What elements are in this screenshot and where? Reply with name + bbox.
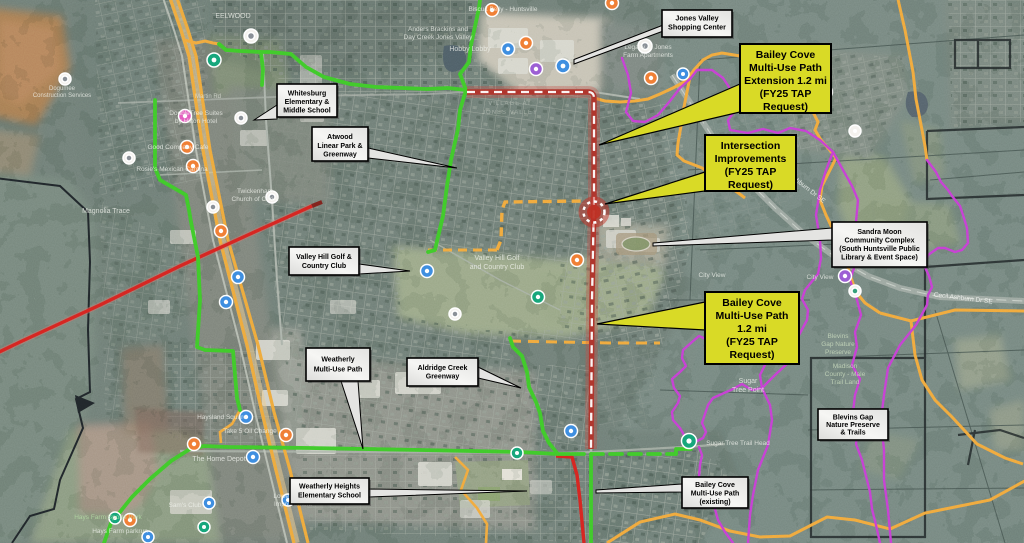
svg-text:Bailey Cove: Bailey Cove <box>722 297 782 309</box>
svg-text:County - Male: County - Male <box>825 371 866 378</box>
svg-text:by Hilton Hotel: by Hilton Hotel <box>175 118 218 125</box>
svg-text:Blevins: Blevins <box>828 333 850 340</box>
svg-text:Extension 1.2 mi: Extension 1.2 mi <box>744 75 827 87</box>
svg-text:Farm Apartments: Farm Apartments <box>623 52 674 59</box>
svg-text:Rosie's Mexican Cantina: Rosie's Mexican Cantina <box>136 166 208 173</box>
svg-text:Tree Point: Tree Point <box>732 387 764 394</box>
svg-text:Weatherly Heights: Weatherly Heights <box>299 484 360 491</box>
svg-text:Blevins Gap: Blevins Gap <box>833 415 873 422</box>
svg-text:Martin Rd: Martin Rd <box>195 94 221 100</box>
svg-text:1.2 mi: 1.2 mi <box>737 323 767 335</box>
svg-text:Trail Land: Trail Land <box>831 379 860 386</box>
svg-text:Intersection: Intersection <box>721 140 781 152</box>
svg-text:Madison: Madison <box>833 363 858 370</box>
svg-text:Request): Request) <box>728 179 773 191</box>
svg-text:Valley Hill Golf: Valley Hill Golf <box>475 255 520 262</box>
svg-text:Nature Preserve: Nature Preserve <box>826 422 880 429</box>
svg-text:Sugar: Sugar <box>739 378 758 385</box>
svg-text:Linear Park &: Linear Park & <box>317 143 362 150</box>
svg-text:Bailey Cove: Bailey Cove <box>695 482 735 489</box>
svg-text:EELWOOD: EELWOOD <box>215 13 250 20</box>
svg-text:Country Club: Country Club <box>302 263 346 270</box>
svg-text:Day Creek Jones Valley: Day Creek Jones Valley <box>404 34 474 41</box>
svg-text:(FY25 TAP: (FY25 TAP <box>725 166 777 178</box>
svg-text:Sugar Tree Trail Head: Sugar Tree Trail Head <box>706 440 770 447</box>
svg-text:The Home Depot: The Home Depot <box>192 456 245 463</box>
svg-text:Greenway: Greenway <box>426 374 460 381</box>
svg-text:Sandra Moon: Sandra Moon <box>857 229 901 236</box>
svg-text:City View: City View <box>807 274 834 281</box>
svg-text:(FY25 TAP: (FY25 TAP <box>760 88 812 100</box>
svg-text:Whitesburg: Whitesburg <box>288 91 327 98</box>
svg-text:Shopping Center: Shopping Center <box>668 23 726 32</box>
svg-text:DoubleTree Suites: DoubleTree Suites <box>169 110 223 117</box>
svg-text:& Trails: & Trails <box>840 430 865 437</box>
svg-text:VILLAGE AT: VILLAGE AT <box>488 101 532 107</box>
svg-text:Greenway: Greenway <box>323 152 357 159</box>
svg-text:Multi-Use Path: Multi-Use Path <box>691 491 740 498</box>
svg-text:Aldridge Creek: Aldridge Creek <box>418 365 468 372</box>
svg-text:Church of Christ: Church of Christ <box>232 196 279 203</box>
svg-text:Dogumee: Dogumee <box>49 86 76 92</box>
svg-text:Biscuit Belly - Huntsville: Biscuit Belly - Huntsville <box>469 6 538 13</box>
svg-text:Hays Farm Sports Park: Hays Farm Sports Park <box>74 514 142 521</box>
svg-text:Community Complex: Community Complex <box>844 238 914 245</box>
svg-text:Anders Brackins and: Anders Brackins and <box>408 26 468 33</box>
svg-text:City View: City View <box>699 272 726 279</box>
svg-text:Elementary School: Elementary School <box>298 493 361 500</box>
svg-text:Weatherly: Weatherly <box>321 357 354 364</box>
svg-text:JONES VALLEY: JONES VALLEY <box>482 110 538 116</box>
svg-text:Improvements: Improvements <box>715 153 787 165</box>
svg-text:Multi-Use Path: Multi-Use Path <box>716 310 789 322</box>
svg-text:Magnolia Trace: Magnolia Trace <box>82 208 130 215</box>
svg-text:Legacy at Jones: Legacy at Jones <box>624 44 672 51</box>
svg-text:Atwood: Atwood <box>327 134 353 141</box>
svg-text:Valley Hill Golf &: Valley Hill Golf & <box>296 254 352 261</box>
svg-text:Multi-Use Path: Multi-Use Path <box>314 367 363 374</box>
svg-text:Hays Farm parkrun: Hays Farm parkrun <box>92 528 148 535</box>
svg-text:(existing): (existing) <box>699 499 730 506</box>
svg-text:Library & Event Space): Library & Event Space) <box>841 255 918 262</box>
svg-text:Sam's Club: Sam's Club <box>168 502 201 509</box>
svg-text:Bailey Cove: Bailey Cove <box>756 49 816 61</box>
svg-text:Hobby Lobby: Hobby Lobby <box>449 46 491 53</box>
svg-text:Request): Request) <box>730 349 775 361</box>
svg-text:Good Company Cafe: Good Company Cafe <box>147 144 208 151</box>
svg-text:Preserve: Preserve <box>825 349 851 356</box>
svg-text:(FY25 TAP: (FY25 TAP <box>726 336 778 348</box>
svg-text:and Country Club: and Country Club <box>470 264 525 271</box>
svg-text:Elementary &: Elementary & <box>285 99 330 106</box>
svg-text:Haysland Square: Haysland Square <box>197 414 247 421</box>
svg-text:Take 5 Oil Change: Take 5 Oil Change <box>223 428 277 435</box>
svg-text:Middle School: Middle School <box>283 108 331 115</box>
svg-text:Request): Request) <box>763 101 808 113</box>
svg-text:Multi-Use Path: Multi-Use Path <box>749 62 822 74</box>
svg-text:(South Huntsville Public: (South Huntsville Public <box>839 246 920 253</box>
svg-text:Gap Nature: Gap Nature <box>821 341 855 348</box>
svg-text:Jones Valley: Jones Valley <box>675 14 718 23</box>
svg-text:Construction Services: Construction Services <box>33 93 91 99</box>
svg-text:Twickenham: Twickenham <box>237 188 273 195</box>
